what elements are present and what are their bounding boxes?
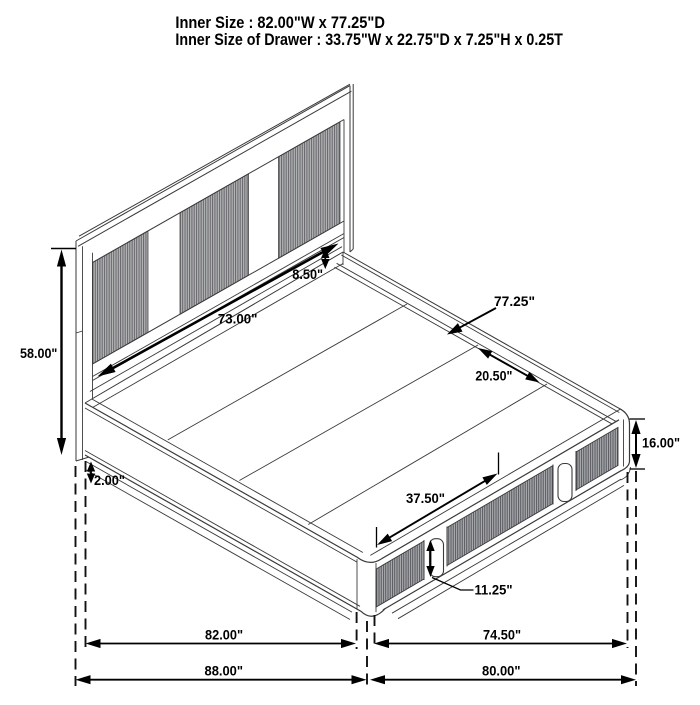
- svg-text:20.50": 20.50": [475, 368, 512, 383]
- svg-text:Inner Size of Drawer : 33.75"W: Inner Size of Drawer : 33.75"W x 22.75"D…: [175, 31, 563, 49]
- svg-text:77.25": 77.25": [494, 294, 535, 309]
- svg-text:73.00": 73.00": [218, 312, 258, 327]
- svg-text:82.00": 82.00": [205, 628, 243, 643]
- svg-text:16.00": 16.00": [642, 436, 680, 451]
- svg-text:88.00": 88.00": [205, 664, 244, 679]
- svg-text:58.00": 58.00": [20, 346, 57, 361]
- svg-text:11.25": 11.25": [475, 583, 513, 598]
- svg-text:37.50": 37.50": [406, 491, 445, 506]
- svg-text:74.50": 74.50": [483, 628, 521, 643]
- svg-text:2.00": 2.00": [94, 473, 125, 488]
- svg-text:Inner Size : 82.00"W x 77.25"D: Inner Size : 82.00"W x 77.25"D: [175, 14, 385, 32]
- svg-text:8.50": 8.50": [292, 267, 323, 282]
- svg-text:80.00": 80.00": [482, 664, 521, 679]
